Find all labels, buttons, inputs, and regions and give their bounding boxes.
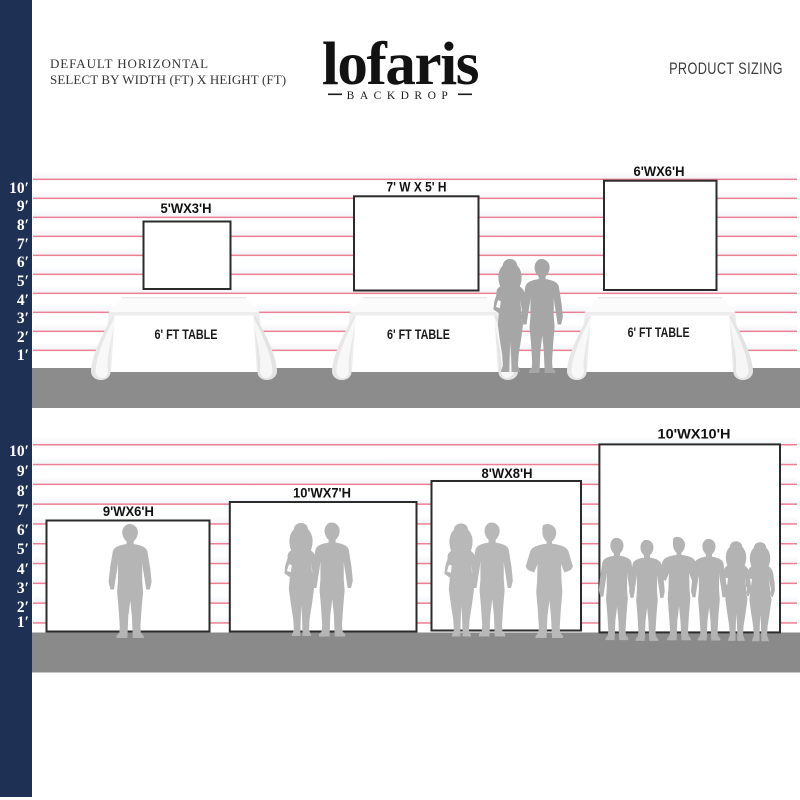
svg-text:4′: 4′ <box>17 561 29 578</box>
svg-text:1′: 1′ <box>17 614 29 631</box>
svg-text:6'WX6'H: 6'WX6'H <box>634 164 685 179</box>
svg-text:7' W X 5' H: 7' W X 5' H <box>387 180 447 195</box>
svg-text:10'WX10'H: 10'WX10'H <box>658 427 731 442</box>
svg-text:9′: 9′ <box>17 198 29 215</box>
svg-text:5'WX3'H: 5'WX3'H <box>161 201 212 216</box>
svg-text:10′: 10′ <box>9 180 29 197</box>
svg-text:9'WX6'H: 9'WX6'H <box>103 504 154 519</box>
svg-text:SELECT BY WIDTH (FT) X HEIGHT: SELECT BY WIDTH (FT) X HEIGHT (FT) <box>50 72 286 87</box>
svg-text:BACKDROP: BACKDROP <box>347 90 454 102</box>
svg-text:2′: 2′ <box>17 329 29 346</box>
svg-text:5′: 5′ <box>17 273 29 290</box>
svg-text:8′: 8′ <box>17 483 29 500</box>
svg-text:lofaris: lofaris <box>322 31 479 98</box>
svg-text:PRODUCT SIZING: PRODUCT SIZING <box>669 61 783 79</box>
svg-text:4′: 4′ <box>17 292 29 309</box>
svg-text:10'WX7'H: 10'WX7'H <box>293 486 351 501</box>
svg-text:DEFAULT HORIZONTAL: DEFAULT HORIZONTAL <box>50 56 209 71</box>
svg-text:6' FT TABLE: 6' FT TABLE <box>155 327 218 342</box>
svg-text:7′: 7′ <box>17 236 29 253</box>
svg-text:3′: 3′ <box>17 310 29 327</box>
svg-text:6′: 6′ <box>17 522 29 539</box>
svg-text:8′: 8′ <box>17 217 29 234</box>
svg-text:6' FT TABLE: 6' FT TABLE <box>387 327 450 342</box>
svg-text:10′: 10′ <box>9 443 29 460</box>
svg-text:1′: 1′ <box>17 347 29 364</box>
svg-text:5′: 5′ <box>17 541 29 558</box>
svg-text:8'WX8'H: 8'WX8'H <box>482 466 533 481</box>
svg-text:7′: 7′ <box>17 502 29 519</box>
svg-text:9′: 9′ <box>17 463 29 480</box>
svg-text:6' FT TABLE: 6' FT TABLE <box>628 325 690 340</box>
svg-text:3′: 3′ <box>17 580 29 597</box>
svg-text:6′: 6′ <box>17 254 29 271</box>
